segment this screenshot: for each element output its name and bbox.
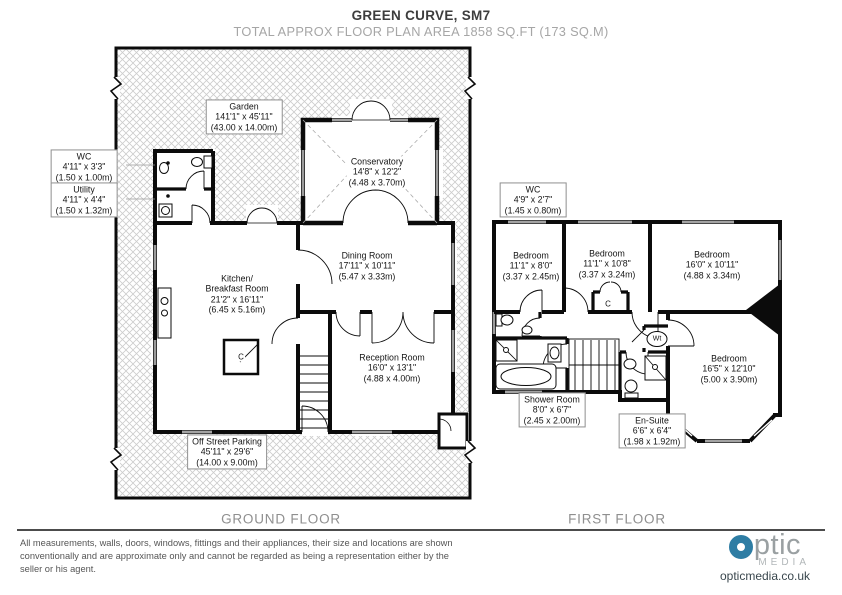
room-name: Breakfast Room bbox=[205, 284, 268, 294]
room-name: Kitchen/ bbox=[205, 273, 268, 283]
room-name: Reception Room bbox=[359, 352, 425, 362]
room-size-metric: (1.98 x 1.92m) bbox=[624, 436, 681, 446]
first-floor-title: FIRST FLOOR bbox=[568, 512, 666, 527]
reception-room-label: Reception Room 16'0" x 13'1" (4.88 x 4.0… bbox=[357, 352, 427, 383]
garden-label: Garden 141'1" x 45'11" (43.00 x 14.00m) bbox=[206, 99, 283, 134]
disclaimer-text: All measurements, walls, doors, windows,… bbox=[20, 537, 468, 576]
first-cupboard-label: C bbox=[604, 300, 612, 309]
page-subtitle: TOTAL APPROX FLOOR PLAN AREA 1858 SQ.FT … bbox=[0, 24, 842, 39]
ensuite-label: En-Suite 6'6" x 6'4" (1.98 x 1.92m) bbox=[619, 413, 686, 448]
room-size-imperial: 6'6" x 6'4" bbox=[624, 426, 681, 436]
room-name: Utility bbox=[56, 184, 113, 194]
floorplan-page: GREEN CURVE, SM7 TOTAL APPROX FLOOR PLAN… bbox=[0, 0, 842, 595]
room-size-metric: (3.37 x 3.24m) bbox=[579, 269, 636, 279]
water-tank-label: Wt bbox=[652, 336, 663, 343]
room-name: Garden bbox=[211, 101, 278, 111]
room-size-metric: (5.00 x 3.90m) bbox=[701, 374, 758, 384]
shower-room-label: Shower Room 8'0" x 6'7" (2.45 x 2.00m) bbox=[519, 392, 586, 427]
room-size-imperial: 16'0" x 10'11" bbox=[684, 260, 741, 270]
logo-media-text: MEDIA bbox=[704, 557, 826, 568]
room-size-imperial: 4'9" x 2'7" bbox=[505, 195, 562, 205]
room-name: WC bbox=[505, 184, 562, 194]
room-size-metric: (14.00 x 9.00m) bbox=[192, 457, 262, 467]
optic-o-ring-icon bbox=[729, 535, 753, 559]
floorplan-canvas bbox=[0, 0, 842, 595]
room-size-metric: (5.47 x 3.33m) bbox=[339, 271, 396, 281]
utility-label: Utility 4'11" x 4'4" (1.50 x 1.32m) bbox=[51, 182, 118, 217]
bedroom3-label: Bedroom 16'0" x 10'11" (4.88 x 3.34m) bbox=[682, 249, 743, 280]
room-size-imperial: 11'1" x 8'0" bbox=[503, 261, 560, 271]
room-size-metric: (1.50 x 1.32m) bbox=[56, 205, 113, 215]
room-size-imperial: 11'1" x 10'8" bbox=[579, 259, 636, 269]
ground-floor-title: GROUND FLOOR bbox=[221, 512, 341, 527]
room-name: Dining Room bbox=[339, 250, 396, 260]
optic-media-logo: ptic MEDIA opticmedia.co.uk bbox=[704, 531, 826, 583]
room-size-metric: (43.00 x 14.00m) bbox=[211, 122, 278, 132]
room-size-imperial: 4'11" x 4'4" bbox=[56, 195, 113, 205]
room-name: Bedroom bbox=[684, 249, 741, 259]
bedroom1-label: Bedroom 11'1" x 8'0" (3.37 x 2.45m) bbox=[501, 250, 562, 281]
room-size-imperial: 17'11" x 10'11" bbox=[339, 261, 396, 271]
room-size-imperial: 141'1" x 45'11" bbox=[211, 112, 278, 122]
bedroom2-label: Bedroom 11'1" x 10'8" (3.37 x 3.24m) bbox=[577, 248, 638, 279]
room-name: WC bbox=[56, 151, 113, 161]
dining-room-label: Dining Room 17'11" x 10'11" (5.47 x 3.33… bbox=[337, 250, 398, 281]
ground-cupboard-label: C bbox=[237, 353, 245, 362]
room-size-imperial: 16'5" x 12'10" bbox=[701, 364, 758, 374]
room-size-metric: (1.45 x 0.80m) bbox=[505, 205, 562, 215]
room-size-metric: (6.45 x 5.16m) bbox=[205, 304, 268, 314]
room-size-imperial: 4'11" x 3'3" bbox=[56, 162, 113, 172]
parking-label: Off Street Parking 45'11" x 29'6" (14.00… bbox=[187, 434, 267, 469]
room-size-metric: (1.50 x 1.00m) bbox=[56, 172, 113, 182]
room-size-metric: (2.45 x 2.00m) bbox=[524, 415, 581, 425]
room-name: Bedroom bbox=[503, 250, 560, 260]
conservatory-label: Conservatory 14'8" x 12'2" (4.48 x 3.70m… bbox=[347, 156, 408, 187]
room-name: En-Suite bbox=[624, 415, 681, 425]
room-name: Bedroom bbox=[701, 353, 758, 363]
page-title: GREEN CURVE, SM7 bbox=[0, 8, 842, 23]
room-name: Off Street Parking bbox=[192, 436, 262, 446]
room-size-metric: (4.48 x 3.70m) bbox=[349, 177, 406, 187]
ground-floor-plan bbox=[111, 48, 475, 498]
room-name: Conservatory bbox=[349, 156, 406, 166]
porch bbox=[439, 414, 467, 448]
room-size-imperial: 14'8" x 12'2" bbox=[349, 167, 406, 177]
logo-url-text: opticmedia.co.uk bbox=[704, 569, 826, 583]
first-wc-label: WC 4'9" x 2'7" (1.45 x 0.80m) bbox=[500, 182, 567, 217]
kitchen-label: Kitchen/ Breakfast Room 21'2" x 16'11" (… bbox=[203, 273, 270, 315]
wc-label: WC 4'11" x 3'3" (1.50 x 1.00m) bbox=[51, 149, 118, 184]
room-size-metric: (3.37 x 2.45m) bbox=[503, 271, 560, 281]
room-size-imperial: 21'2" x 16'11" bbox=[205, 294, 268, 304]
bedroom4-label: Bedroom 16'5" x 12'10" (5.00 x 3.90m) bbox=[699, 353, 760, 384]
room-size-imperial: 45'11" x 29'6" bbox=[192, 447, 262, 457]
room-name: Shower Room bbox=[524, 394, 581, 404]
room-size-imperial: 16'0" x 13'1" bbox=[359, 363, 425, 373]
room-size-imperial: 8'0" x 6'7" bbox=[524, 405, 581, 415]
room-size-metric: (4.88 x 3.34m) bbox=[684, 270, 741, 280]
room-name: Bedroom bbox=[579, 248, 636, 258]
room-size-metric: (4.88 x 4.00m) bbox=[359, 373, 425, 383]
